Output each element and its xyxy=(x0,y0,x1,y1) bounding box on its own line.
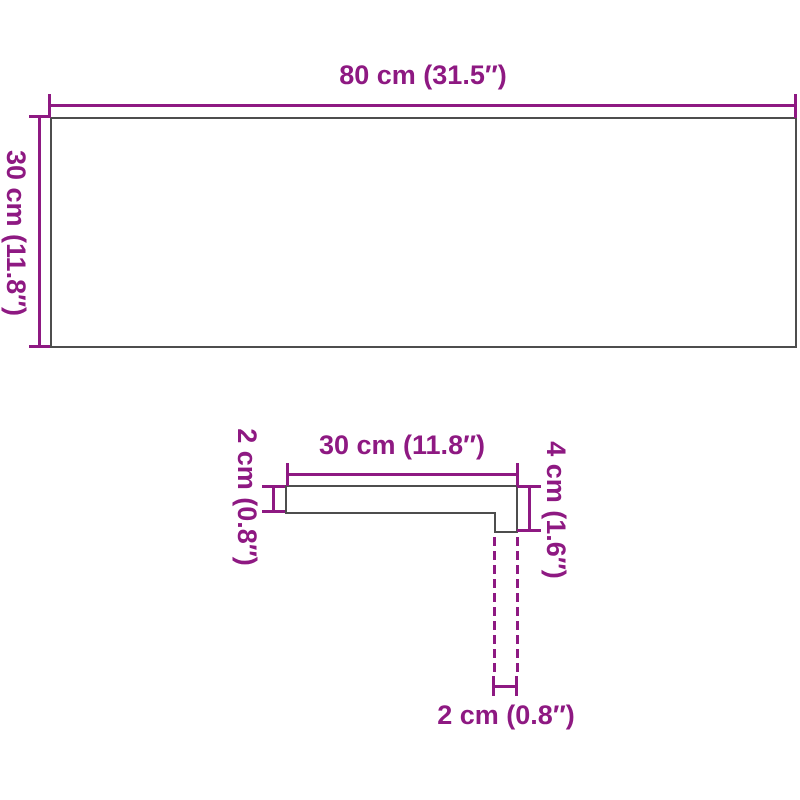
tread-profile-outline xyxy=(283,483,521,535)
width-dimension-tick-right xyxy=(794,94,797,118)
nose-width-dimension-tick-right xyxy=(515,676,518,696)
width-dimension-label: 80 cm (31.5″) xyxy=(223,61,623,91)
depth-dimension-tick-right xyxy=(516,463,519,486)
width-dimension-line xyxy=(50,104,796,107)
nose-width-dimension-tick-left xyxy=(492,676,495,696)
front-edge-dimension-line xyxy=(528,487,531,531)
height-dimension-tick-bottom xyxy=(29,345,50,348)
dimension-diagram: 80 cm (31.5″) 30 cm (11.8″) 30 cm (11.8″… xyxy=(0,0,800,800)
projection-dashed-line-right xyxy=(516,537,519,676)
tread-profile-shape xyxy=(286,486,517,532)
front-edge-dimension-tick-bottom xyxy=(517,529,541,532)
board-top-view-outline xyxy=(50,117,797,348)
thickness-dimension-label: 2 cm (0.8″) xyxy=(231,428,261,566)
front-edge-dimension-tick-top xyxy=(517,485,541,488)
height-dimension-label: 30 cm (11.8″) xyxy=(0,150,30,316)
nose-width-dimension-label: 2 cm (0.8″) xyxy=(356,701,656,731)
depth-dimension-line xyxy=(288,473,518,476)
thickness-dimension-line xyxy=(272,487,275,512)
height-dimension-line xyxy=(38,117,41,348)
thickness-dimension-tick-bottom xyxy=(262,510,285,513)
projection-dashed-line-left xyxy=(493,537,496,676)
front-edge-dimension-label: 4 cm (1.6″) xyxy=(540,441,570,579)
depth-dimension-label: 30 cm (11.8″) xyxy=(252,431,552,461)
height-dimension-tick-top xyxy=(29,115,50,118)
depth-dimension-tick-left xyxy=(286,463,289,486)
thickness-dimension-tick-top xyxy=(262,485,285,488)
